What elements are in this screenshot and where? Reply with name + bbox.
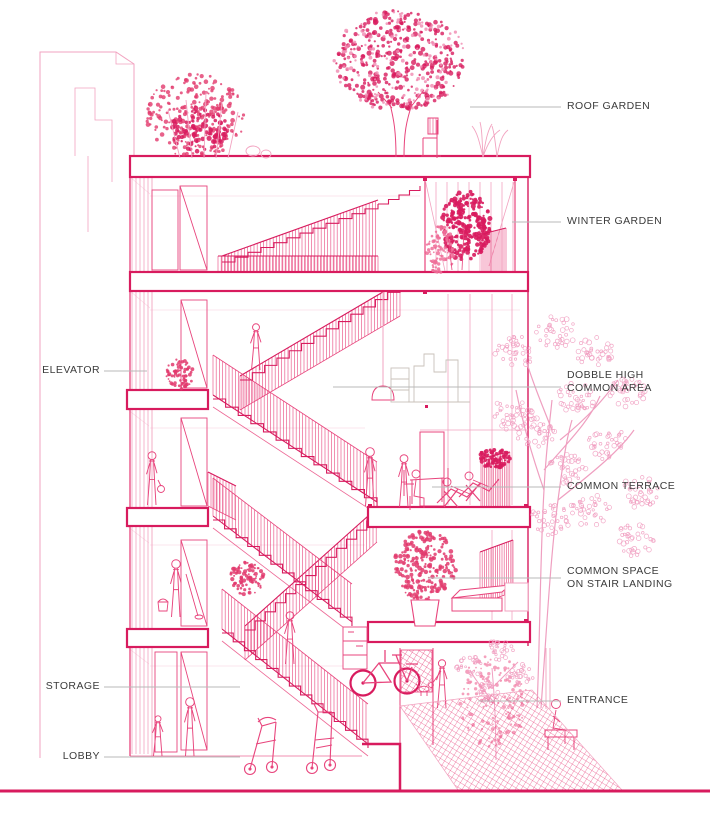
- elevator-shaft: [130, 156, 152, 756]
- entrance-canopy-slab: [368, 622, 530, 642]
- label-elevator: ELEVATOR: [20, 364, 100, 377]
- label-storage: STORAGE: [20, 680, 100, 693]
- elevator-doors: [152, 186, 207, 752]
- winter-garden-slab: [130, 272, 528, 291]
- common-terrace-slab: [368, 507, 530, 527]
- label-common-space-on-stair-landing: COMMON SPACE ON STAIR LANDING: [567, 565, 673, 591]
- roof-chair: [421, 118, 441, 158]
- stroller-folded: [245, 717, 278, 774]
- wall-shelf: [343, 627, 367, 669]
- left-lower-slab: [127, 629, 208, 647]
- entrance-door-hatch: [401, 650, 432, 692]
- label-entrance: ENTRANCE: [567, 694, 628, 707]
- roof-slab: [130, 156, 530, 177]
- left-landing-slab: [127, 508, 208, 526]
- label-dobble-high-common-area: DOBBLE HIGH COMMON AREA: [567, 369, 652, 395]
- label-lobby: LOBBY: [20, 750, 100, 763]
- mid-landing-slab: [127, 390, 208, 409]
- planter-pot: [411, 600, 439, 626]
- leader-lines: [104, 107, 561, 757]
- architectural-section-page: ROOF GARDEN WINTER GARDEN ELEVATOR DOBBL…: [0, 0, 710, 816]
- label-roof-garden: ROOF GARDEN: [567, 100, 650, 113]
- background-shelves: [391, 354, 470, 402]
- street-tree: [516, 360, 634, 708]
- label-winter-garden: WINTER GARDEN: [567, 215, 662, 228]
- context-building: [40, 52, 134, 758]
- label-common-terrace: COMMON TERRACE: [567, 480, 675, 493]
- bench-common-space: [452, 583, 528, 611]
